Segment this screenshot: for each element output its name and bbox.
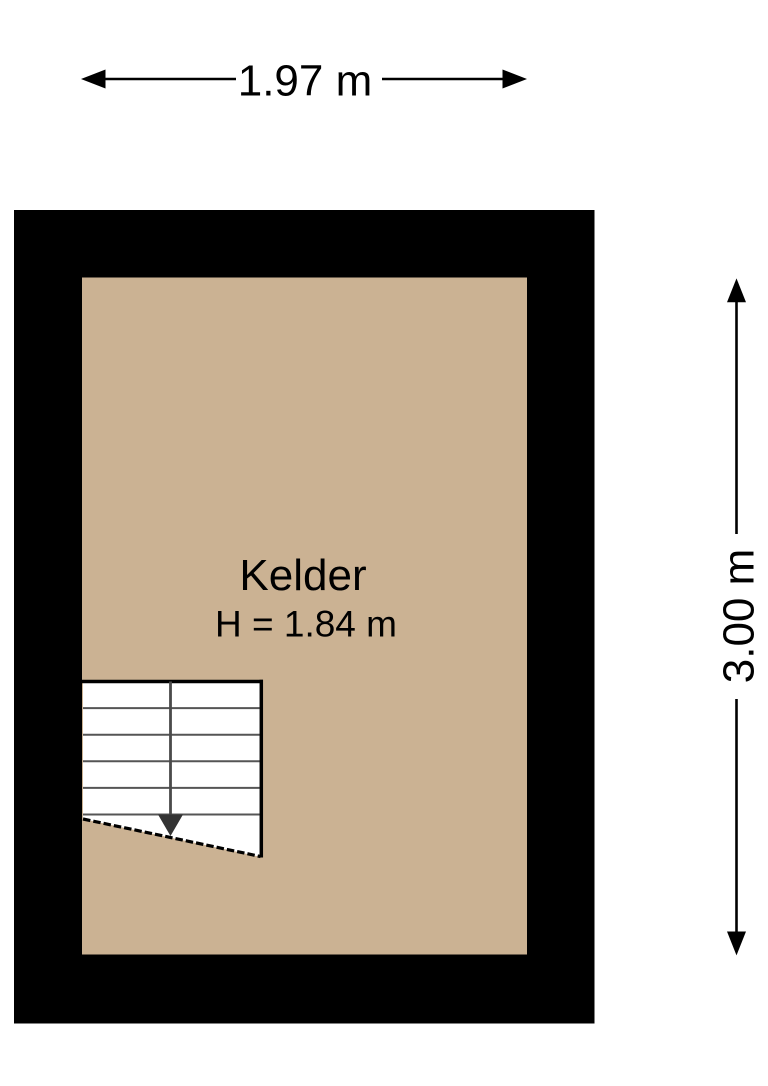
- svg-text:1.97 m: 1.97 m: [238, 57, 373, 106]
- svg-text:3.00 m: 3.00 m: [715, 549, 764, 684]
- svg-text:H = 1.84 m: H = 1.84 m: [215, 604, 397, 645]
- svg-text:Kelder: Kelder: [239, 551, 366, 600]
